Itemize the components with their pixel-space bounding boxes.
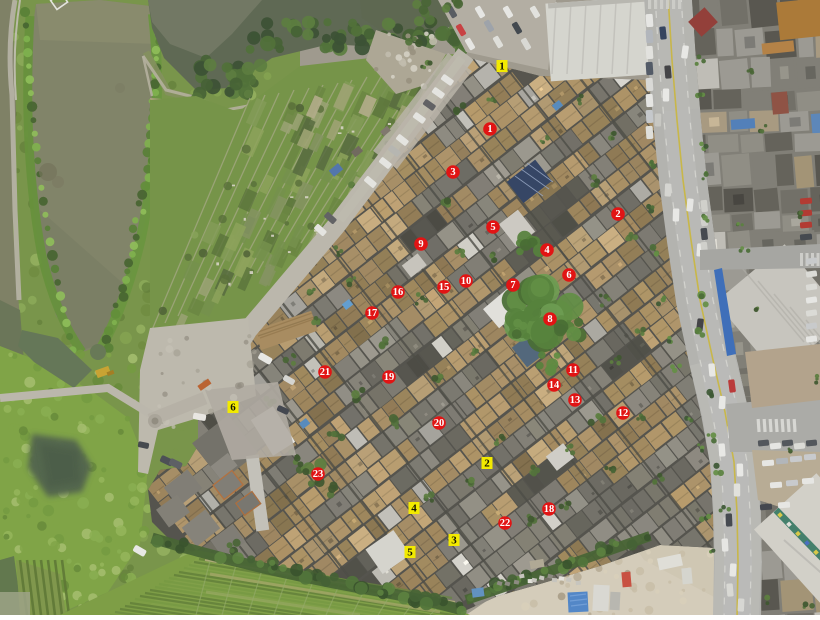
svg-text:4: 4 <box>411 503 417 515</box>
svg-text:19: 19 <box>384 372 395 383</box>
svg-text:3: 3 <box>451 535 457 547</box>
svg-text:10: 10 <box>461 276 472 287</box>
svg-text:14: 14 <box>549 380 560 391</box>
svg-text:12: 12 <box>618 408 629 419</box>
svg-text:2: 2 <box>484 458 490 470</box>
svg-text:2: 2 <box>615 209 620 220</box>
svg-text:5: 5 <box>407 547 413 559</box>
svg-text:20: 20 <box>434 418 445 429</box>
svg-text:1: 1 <box>487 124 492 135</box>
svg-text:18: 18 <box>544 504 555 515</box>
svg-text:9: 9 <box>418 239 423 250</box>
svg-text:7: 7 <box>510 280 515 291</box>
svg-text:15: 15 <box>439 282 450 293</box>
svg-text:3: 3 <box>450 167 455 178</box>
svg-text:1: 1 <box>499 61 505 73</box>
svg-text:13: 13 <box>570 395 581 406</box>
svg-text:17: 17 <box>367 308 378 319</box>
svg-text:16: 16 <box>393 287 404 298</box>
svg-text:8: 8 <box>547 314 552 325</box>
svg-text:11: 11 <box>568 365 578 376</box>
svg-text:4: 4 <box>544 245 550 256</box>
svg-text:21: 21 <box>320 367 331 378</box>
svg-text:5: 5 <box>490 222 495 233</box>
svg-text:6: 6 <box>566 270 571 281</box>
svg-text:6: 6 <box>230 402 236 414</box>
svg-text:22: 22 <box>500 518 511 529</box>
svg-text:23: 23 <box>313 469 324 480</box>
